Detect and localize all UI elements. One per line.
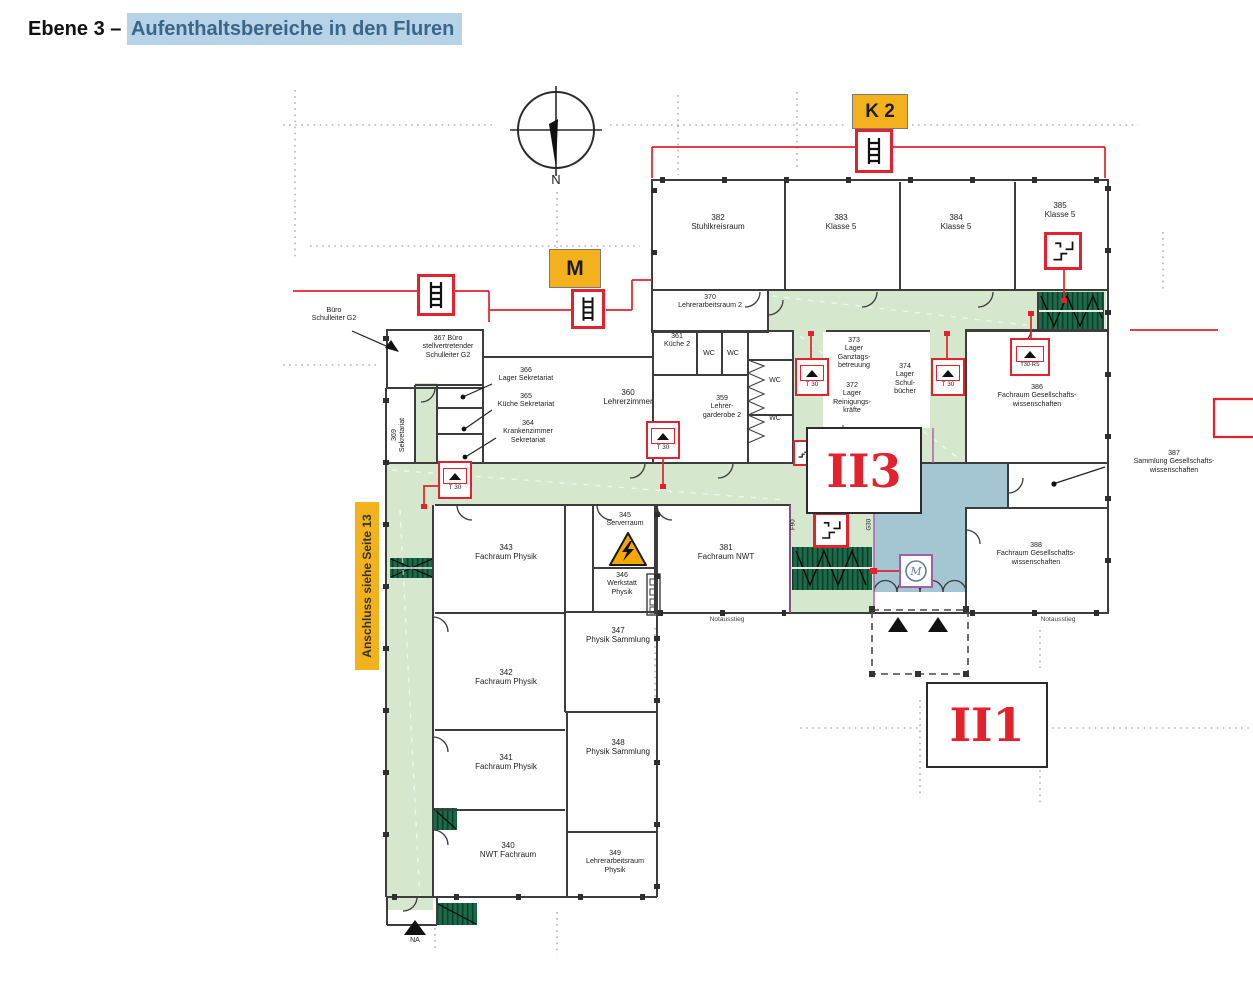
room-label-345: 345 Serverraum	[594, 511, 656, 528]
t30-label: T 30	[806, 382, 819, 388]
room-label-361: 361 Küche 2	[648, 332, 706, 349]
annotation-buero-schulleiter: Büro Schulleiter G2	[286, 306, 382, 323]
room-label-366: 366 Lager Sekretariat	[468, 366, 584, 383]
room-label-364: 364 Krankenzimmer Sekretariat	[470, 419, 586, 444]
room-label-348: 348 Physik Sammlung	[556, 738, 680, 757]
wc-label-1: WC	[698, 349, 720, 357]
ladder-glyph	[864, 136, 884, 166]
room-label-385: 385 Klasse 5	[1012, 201, 1108, 220]
ladder-icon-m-left	[417, 274, 455, 316]
room-label-374: 374 Lager Schul- bücher	[874, 362, 936, 395]
svg-text:M: M	[909, 565, 922, 578]
external-stair-outline	[869, 606, 969, 677]
wc-label-3: WC	[764, 376, 786, 384]
riser-marker-m: M	[549, 249, 601, 288]
wc-label-2: WC	[722, 349, 744, 357]
zone-label-ii3: II3	[806, 427, 922, 514]
ladder-icon-k2	[855, 129, 893, 173]
room-label-359: 359 Lehrer- garderobe 2	[684, 394, 760, 419]
room-label-365: 365 Küche Sekretariat	[468, 392, 584, 409]
ladder-glyph	[426, 280, 446, 310]
t30-label: T 30	[657, 445, 670, 451]
room-label-381: 381 Fachraum NWT	[665, 543, 787, 562]
floor-plan-drawing	[0, 0, 1253, 994]
ladder-glyph	[579, 295, 597, 323]
door-symbol	[651, 428, 675, 444]
fire-rating-label-g30: G30	[865, 512, 872, 538]
room-label-369: 369 Sekretariat	[390, 405, 412, 465]
t30-door-icon-mid-right: T 30	[931, 358, 965, 396]
notausstieg-label-right: Notausstieg	[1008, 616, 1108, 624]
escape-plan-glyph	[819, 518, 843, 542]
ladder-icon-m-right	[571, 289, 605, 329]
door-symbol	[443, 468, 467, 484]
electrical-hazard-icon	[610, 533, 646, 565]
floor-plan-page: Ebene 3 – Aufenthaltsbereiche in den Flu…	[0, 0, 1253, 994]
room-label-346: 346 Werkstatt Physik	[596, 571, 648, 596]
escape-plan-icon-385	[1044, 232, 1082, 270]
door-symbol	[800, 365, 824, 381]
room-label-388: 388 Fachraum Gesellschafts- wissenschaft…	[967, 541, 1105, 566]
t30-label: T 30	[449, 485, 462, 491]
room-label-387: 387 Sammlung Gesellschafts- wissenschaft…	[1098, 449, 1250, 474]
zone-label-ii1: II1	[926, 682, 1048, 768]
room-label-360: 360 Lehrerzimmer	[570, 388, 686, 407]
escape-plan-glyph	[1050, 238, 1076, 264]
room-label-342: 342 Fachraum Physik	[444, 668, 568, 687]
room-label-386: 386 Fachraum Gesellschafts- wissenschaft…	[968, 383, 1106, 408]
riser-marker-k2: K 2	[852, 94, 908, 129]
room-label-343: 343 Fachraum Physik	[444, 543, 568, 562]
t30-door-icon-mid-left: T 30	[795, 358, 829, 396]
room-label-384: 384 Klasse 5	[900, 213, 1012, 232]
compass-north-label: N	[544, 172, 568, 187]
t30-label: T 30	[942, 382, 955, 388]
room-label-347: 347 Physik Sammlung	[556, 626, 680, 645]
wall-tie-marks	[386, 180, 1108, 897]
t30-door-icon-corridor: T 30	[646, 421, 680, 459]
door-symbol	[1016, 346, 1044, 362]
t30-rs-door-icon: T30-RS	[1010, 338, 1050, 376]
room-label-382: 382 Stuhlkreisraum	[656, 213, 780, 232]
compass-rose	[510, 86, 602, 176]
exit-triangles	[404, 617, 948, 935]
t30-rs-label: T30-RS	[1020, 363, 1039, 369]
escape-plan-icon-f90	[813, 512, 849, 548]
wc-label-4: WC	[764, 414, 786, 422]
door-symbol	[936, 365, 960, 381]
anschluss-note: Anschluss siehe Seite 13	[355, 502, 379, 670]
t30-door-icon-west: T 30	[438, 461, 472, 499]
motor-damper-icon: M	[899, 554, 933, 588]
notausstieg-label-left: Notausstieg	[677, 616, 777, 624]
motor-glyph: M	[903, 558, 929, 584]
room-label-383: 383 Klasse 5	[785, 213, 897, 232]
room-label-370: 370 Lehrerarbeitsraum 2	[653, 293, 767, 310]
room-label-341: 341 Fachraum Physik	[444, 753, 568, 772]
room-label-367: 367 Büro stellvertretender Schulleiter G…	[396, 334, 500, 359]
room-label-349: 349 Lehrerarbeitsraum Physik	[550, 849, 680, 874]
na-exit-label: NA	[401, 936, 429, 944]
fire-rating-label-f90: F90	[789, 512, 796, 538]
